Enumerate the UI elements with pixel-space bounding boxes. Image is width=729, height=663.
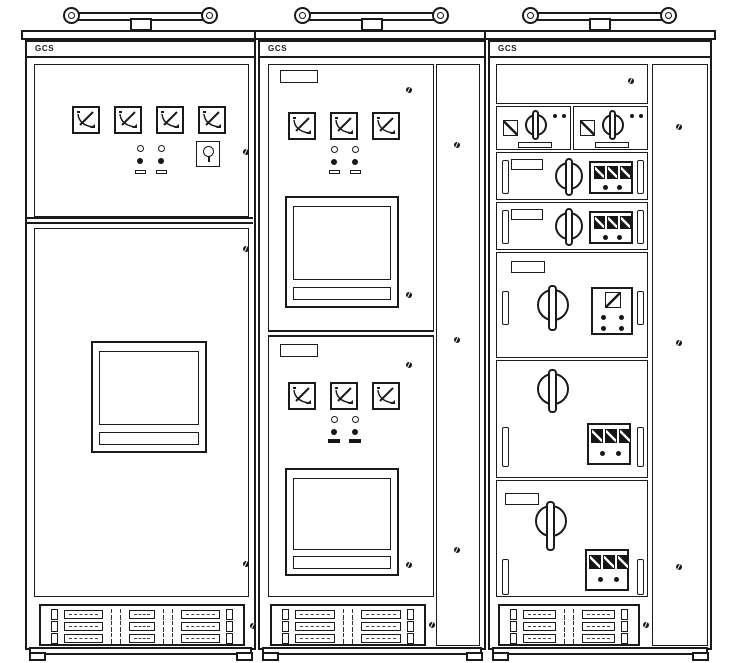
door-screw-icon bbox=[243, 561, 249, 567]
switchgear-elevation-drawing: GCS GCS bbox=[0, 0, 729, 663]
roof-plate bbox=[484, 30, 716, 40]
brand-label-text: GCS bbox=[498, 44, 517, 53]
indicator-dot-icon bbox=[600, 451, 605, 456]
beam-center-block bbox=[589, 18, 611, 31]
indicator-lamp-icon bbox=[137, 145, 144, 152]
terminal-end-cap bbox=[226, 621, 233, 632]
ammeter-icon bbox=[156, 106, 184, 134]
eyebolt-icon bbox=[432, 7, 449, 24]
door-screw-icon bbox=[406, 362, 412, 368]
door-screw-icon bbox=[243, 246, 249, 252]
label-strip bbox=[135, 170, 146, 174]
terminal-end-cap bbox=[226, 609, 233, 620]
brand-label: GCS bbox=[260, 42, 484, 58]
terminal-end-cap bbox=[510, 633, 517, 644]
meter-block bbox=[585, 549, 629, 591]
terminal-strip-row bbox=[510, 633, 628, 643]
terminal-gap bbox=[109, 620, 123, 632]
terminal-gap bbox=[109, 632, 123, 644]
mini-meter-icon bbox=[607, 216, 618, 229]
base-strip bbox=[492, 647, 708, 655]
indicator-lamp-icon bbox=[352, 416, 359, 423]
roof-plate bbox=[254, 30, 490, 40]
terminal-end-cap bbox=[407, 621, 414, 632]
terminal-gap bbox=[161, 620, 175, 632]
terminal-bar bbox=[523, 622, 556, 631]
ammeter-icon bbox=[288, 382, 316, 410]
display-screen bbox=[293, 206, 391, 280]
drawer-handle bbox=[502, 210, 509, 244]
terminal-end-cap bbox=[226, 633, 233, 644]
drawer-handle bbox=[502, 427, 509, 467]
mini-meter-icon bbox=[580, 120, 595, 136]
terminal-gap bbox=[341, 632, 355, 644]
label-strip bbox=[328, 439, 340, 443]
drawer-unit bbox=[496, 252, 648, 358]
key-switch-slot bbox=[208, 156, 210, 162]
cabinet-foot bbox=[692, 652, 709, 661]
eyebolt-icon bbox=[63, 7, 80, 24]
section-divider bbox=[27, 217, 253, 224]
drawer-handle bbox=[502, 160, 509, 194]
terminal-end-cap bbox=[621, 633, 628, 644]
rotary-switch-handle bbox=[532, 110, 539, 140]
label-strip bbox=[350, 170, 361, 174]
rotary-switch-handle bbox=[548, 285, 557, 331]
indicator-lamp-icon bbox=[331, 146, 338, 153]
terminal-gap bbox=[161, 608, 175, 620]
nameplate bbox=[505, 493, 539, 505]
drawer-unit bbox=[496, 360, 648, 478]
terminal-bar bbox=[523, 634, 556, 643]
terminal-bar bbox=[295, 610, 335, 619]
terminal-bar bbox=[295, 622, 335, 631]
ammeter-icon bbox=[330, 382, 358, 410]
door-screw-icon bbox=[406, 562, 412, 568]
ammeter-icon bbox=[198, 106, 226, 134]
indicator-lamp-icon bbox=[352, 159, 358, 165]
terminal-bar bbox=[582, 634, 615, 643]
terminal-bar bbox=[361, 634, 401, 643]
middle-cabinet: GCS bbox=[258, 40, 486, 650]
indicator-lamp-icon bbox=[562, 114, 566, 118]
drawer-slot bbox=[595, 142, 629, 148]
eyebolt-icon bbox=[660, 7, 677, 24]
indicator-lamp-icon bbox=[158, 158, 164, 164]
ammeter-icon bbox=[330, 112, 358, 140]
terminal-strip-row bbox=[51, 621, 233, 631]
door-screw-icon bbox=[676, 124, 682, 130]
door-screw-icon bbox=[454, 337, 460, 343]
terminal-end-cap bbox=[282, 633, 289, 644]
drawer-handle bbox=[637, 160, 644, 194]
door-screw-icon bbox=[250, 623, 256, 629]
indicator-dot-icon bbox=[603, 235, 608, 240]
mini-meter-icon bbox=[594, 216, 605, 229]
rotary-switch-handle bbox=[548, 369, 557, 413]
cabinet-foot bbox=[29, 652, 46, 661]
drawer-slot bbox=[518, 142, 552, 148]
indicator-dot-icon bbox=[617, 185, 622, 190]
terminal-bar bbox=[129, 610, 155, 619]
terminal-gap bbox=[341, 620, 355, 632]
terminal-end-cap bbox=[510, 621, 517, 632]
blank-panel bbox=[496, 64, 648, 104]
terminal-bar bbox=[129, 622, 155, 631]
terminal-bar bbox=[64, 610, 103, 619]
label-strip bbox=[329, 170, 340, 174]
brand-label-text: GCS bbox=[35, 44, 54, 53]
mini-meter-icon bbox=[605, 429, 617, 443]
mini-meter-icon bbox=[617, 555, 629, 569]
indicator-dot-icon bbox=[601, 326, 606, 331]
indicator-dot-icon bbox=[601, 315, 606, 320]
cabinet-foot bbox=[262, 652, 279, 661]
terminal-gap bbox=[562, 608, 576, 620]
drawer-handle bbox=[637, 291, 644, 325]
drawer-handle bbox=[637, 427, 644, 467]
key-switch-icon bbox=[196, 141, 220, 167]
terminal-gap bbox=[562, 620, 576, 632]
door-screw-icon bbox=[454, 142, 460, 148]
indicator-lamp-icon bbox=[352, 146, 359, 153]
label-strip bbox=[349, 439, 361, 443]
mini-meter-icon bbox=[594, 166, 605, 179]
terminal-end-cap bbox=[621, 621, 628, 632]
terminal-strip-row bbox=[282, 609, 414, 619]
base-strip bbox=[262, 647, 482, 655]
mini-meter-icon bbox=[605, 292, 621, 308]
terminal-end-cap bbox=[282, 609, 289, 620]
cable-compartment-door bbox=[436, 64, 480, 646]
indicator-lamp-icon bbox=[639, 114, 643, 118]
indicator-lamp-icon bbox=[331, 429, 337, 435]
terminal-end-cap bbox=[510, 609, 517, 620]
indicator-dot-icon bbox=[614, 577, 619, 582]
terminal-bar bbox=[361, 622, 401, 631]
indicator-lamp-icon bbox=[331, 416, 338, 423]
terminal-gap bbox=[341, 608, 355, 620]
terminal-end-cap bbox=[51, 609, 58, 620]
indicator-lamp-icon bbox=[331, 159, 337, 165]
rotary-switch-handle bbox=[609, 110, 616, 140]
brand-label-text: GCS bbox=[268, 44, 287, 53]
mini-meter-icon bbox=[607, 166, 618, 179]
right-cabinet: GCS bbox=[488, 40, 712, 650]
left-cabinet: GCS bbox=[25, 40, 256, 650]
terminal-strip-row bbox=[510, 609, 628, 619]
drawer-unit bbox=[496, 152, 648, 200]
indicator-lamp-icon bbox=[630, 114, 634, 118]
door-screw-icon bbox=[628, 78, 634, 84]
terminal-bar bbox=[64, 622, 103, 631]
eyebolt-icon bbox=[201, 7, 218, 24]
terminal-end-cap bbox=[621, 609, 628, 620]
meter-block bbox=[589, 211, 633, 244]
mini-meter-icon bbox=[620, 216, 631, 229]
meter-block bbox=[587, 423, 631, 465]
terminal-strip-panel bbox=[498, 604, 640, 646]
door-screw-icon bbox=[243, 149, 249, 155]
ammeter-icon bbox=[72, 106, 100, 134]
roof-plate bbox=[21, 30, 260, 40]
drawer-unit bbox=[573, 106, 648, 150]
terminal-end-cap bbox=[51, 621, 58, 632]
mini-meter-icon bbox=[619, 429, 631, 443]
terminal-gap bbox=[161, 632, 175, 644]
drawer-handle bbox=[502, 291, 509, 325]
terminal-strip-row bbox=[282, 621, 414, 631]
rotary-switch-handle bbox=[565, 158, 573, 196]
mini-meter-icon bbox=[620, 166, 631, 179]
beam-center-block bbox=[361, 18, 383, 31]
indicator-lamp-icon bbox=[553, 114, 557, 118]
mini-meter-icon bbox=[503, 120, 518, 136]
display-screen bbox=[99, 351, 199, 425]
indicator-dot-icon bbox=[617, 235, 622, 240]
eyebolt-icon bbox=[294, 7, 311, 24]
indicator-dot-icon bbox=[619, 326, 624, 331]
door-screw-icon bbox=[454, 547, 460, 553]
cabinet-foot bbox=[466, 652, 483, 661]
drawer-handle bbox=[502, 559, 509, 595]
door-screw-icon bbox=[676, 340, 682, 346]
nameplate bbox=[511, 159, 543, 170]
terminal-strip-panel bbox=[270, 604, 426, 646]
terminal-bar bbox=[181, 622, 220, 631]
mini-meter-icon bbox=[591, 429, 603, 443]
terminal-strip-row bbox=[51, 633, 233, 643]
terminal-strip-row bbox=[510, 621, 628, 631]
indicator-lamp-icon bbox=[158, 145, 165, 152]
door-screw-icon bbox=[429, 622, 435, 628]
indicator-lamp-icon bbox=[137, 158, 143, 164]
ammeter-icon bbox=[288, 112, 316, 140]
drawer-unit bbox=[496, 106, 571, 150]
display-screen bbox=[293, 478, 391, 550]
terminal-end-cap bbox=[407, 633, 414, 644]
terminal-bar bbox=[361, 610, 401, 619]
drawer-handle bbox=[637, 559, 644, 595]
terminal-gap bbox=[562, 632, 576, 644]
terminal-strip-row bbox=[282, 633, 414, 643]
cabinet-foot bbox=[492, 652, 509, 661]
door-screw-icon bbox=[676, 564, 682, 570]
nameplate bbox=[280, 70, 318, 83]
rotary-switch-handle bbox=[546, 501, 555, 551]
nameplate bbox=[280, 344, 318, 357]
door-screw-icon bbox=[406, 87, 412, 93]
door-screw-icon bbox=[643, 622, 649, 628]
terminal-bar bbox=[64, 634, 103, 643]
terminal-bar bbox=[129, 634, 155, 643]
terminal-end-cap bbox=[51, 633, 58, 644]
indicator-dot-icon bbox=[616, 451, 621, 456]
label-strip bbox=[156, 170, 167, 174]
terminal-strip-panel bbox=[39, 604, 245, 646]
ammeter-icon bbox=[114, 106, 142, 134]
nameplate bbox=[511, 209, 543, 220]
nameplate bbox=[511, 261, 545, 273]
display-slot bbox=[293, 556, 391, 569]
cable-compartment-door bbox=[652, 64, 708, 646]
drawer-unit bbox=[496, 202, 648, 250]
meter-block bbox=[591, 287, 633, 335]
base-strip bbox=[29, 647, 252, 655]
terminal-bar bbox=[181, 634, 220, 643]
terminal-gap bbox=[109, 608, 123, 620]
terminal-bar bbox=[582, 610, 615, 619]
terminal-bar bbox=[582, 622, 615, 631]
eyebolt-icon bbox=[522, 7, 539, 24]
display-slot bbox=[99, 432, 199, 445]
cabinet-foot bbox=[236, 652, 253, 661]
display-slot bbox=[293, 287, 391, 300]
indicator-dot-icon bbox=[603, 185, 608, 190]
drawer-unit bbox=[496, 480, 648, 597]
section-divider bbox=[268, 330, 434, 337]
terminal-bar bbox=[523, 610, 556, 619]
indicator-dot-icon bbox=[598, 577, 603, 582]
terminal-strip-row bbox=[51, 609, 233, 619]
indicator-dot-icon bbox=[619, 315, 624, 320]
meter-block bbox=[589, 161, 633, 194]
mini-meter-icon bbox=[589, 555, 601, 569]
ammeter-icon bbox=[372, 112, 400, 140]
mini-meter-icon bbox=[603, 555, 615, 569]
rotary-switch-handle bbox=[565, 208, 573, 246]
brand-label: GCS bbox=[27, 42, 254, 58]
brand-label: GCS bbox=[490, 42, 710, 58]
drawer-handle bbox=[637, 210, 644, 244]
terminal-bar bbox=[181, 610, 220, 619]
terminal-bar bbox=[295, 634, 335, 643]
door-screw-icon bbox=[406, 292, 412, 298]
terminal-end-cap bbox=[282, 621, 289, 632]
indicator-lamp-icon bbox=[352, 429, 358, 435]
ammeter-icon bbox=[372, 382, 400, 410]
beam-center-block bbox=[130, 18, 152, 31]
terminal-end-cap bbox=[407, 609, 414, 620]
